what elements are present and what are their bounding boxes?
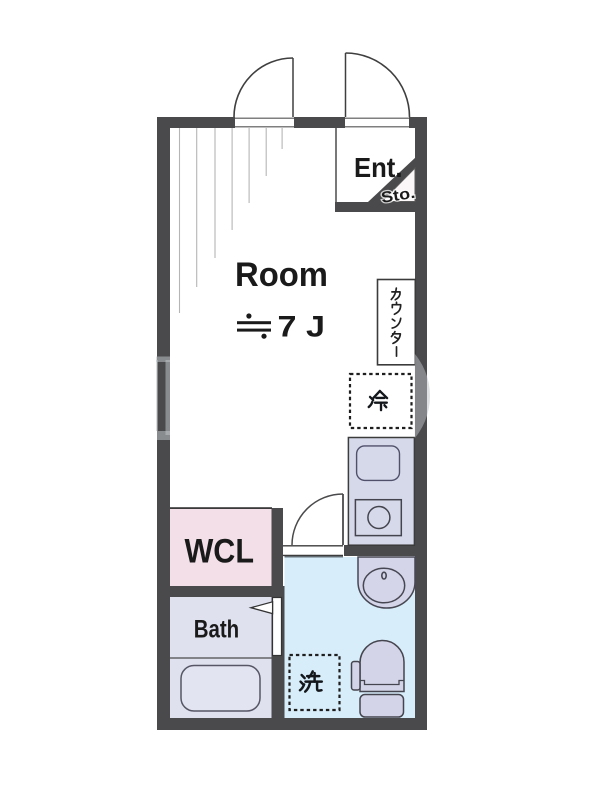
svg-text:Ent.: Ent. xyxy=(354,152,403,183)
svg-text:7 J: 7 J xyxy=(278,311,326,344)
svg-text:WCL: WCL xyxy=(185,533,255,571)
svg-text:Room: Room xyxy=(235,256,328,294)
svg-text:Bath: Bath xyxy=(194,615,240,643)
